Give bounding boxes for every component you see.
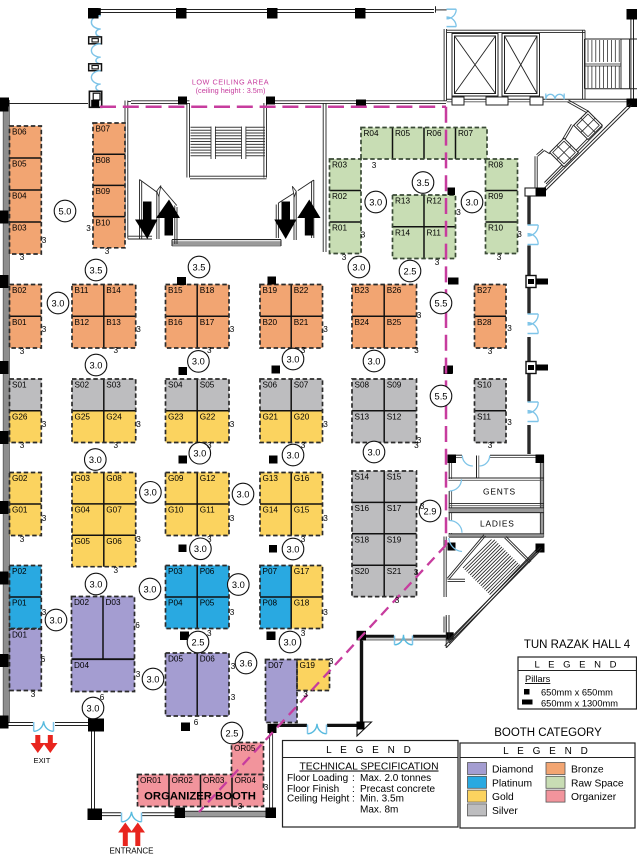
svg-text:D06: D06 — [200, 655, 215, 664]
svg-text:D05: D05 — [168, 655, 183, 664]
svg-text:3: 3 — [414, 346, 419, 355]
svg-text:3: 3 — [301, 441, 306, 450]
svg-text:R14: R14 — [395, 228, 410, 237]
svg-text:3: 3 — [207, 629, 212, 638]
svg-text:3: 3 — [414, 568, 419, 577]
svg-text:G10: G10 — [168, 506, 184, 515]
svg-text:B11: B11 — [75, 286, 89, 295]
svg-text:3: 3 — [507, 324, 512, 333]
svg-text:R04: R04 — [364, 129, 379, 138]
svg-text:2.5: 2.5 — [192, 637, 205, 647]
svg-text:S06: S06 — [263, 381, 278, 390]
svg-text:D07: D07 — [268, 661, 283, 670]
svg-text:P03: P03 — [168, 567, 183, 576]
svg-text:3.0: 3.0 — [194, 544, 207, 554]
svg-text:G08: G08 — [106, 474, 122, 483]
svg-text:3: 3 — [207, 535, 212, 544]
svg-text:3: 3 — [323, 608, 328, 617]
svg-text:6: 6 — [100, 693, 105, 702]
svg-text:D03: D03 — [106, 598, 121, 607]
svg-text:B15: B15 — [168, 286, 183, 295]
svg-text:TECHNICAL SPECIFICATION: TECHNICAL SPECIFICATION — [299, 762, 438, 773]
svg-text:B08: B08 — [96, 156, 111, 165]
svg-text:G20: G20 — [294, 412, 310, 421]
svg-text:3.0: 3.0 — [144, 584, 157, 594]
svg-text:L E G E N D: L E G E N D — [326, 745, 414, 756]
svg-text:3: 3 — [31, 690, 36, 699]
svg-text:3: 3 — [435, 258, 440, 267]
svg-text:P04: P04 — [168, 599, 183, 608]
svg-text:P01: P01 — [12, 599, 27, 608]
svg-text:B17: B17 — [200, 318, 215, 327]
svg-text:G21: G21 — [263, 412, 279, 421]
svg-text:G09: G09 — [168, 474, 184, 483]
svg-text:Floor Loading: Floor Loading — [287, 773, 348, 784]
svg-text:3: 3 — [303, 690, 308, 699]
svg-text:3: 3 — [20, 441, 25, 450]
svg-text:B26: B26 — [387, 286, 402, 295]
svg-text:3.0: 3.0 — [368, 356, 381, 366]
svg-text:G11: G11 — [200, 506, 215, 515]
svg-text:R09: R09 — [488, 192, 503, 201]
svg-text:R05: R05 — [395, 129, 410, 138]
svg-text:3: 3 — [42, 236, 47, 245]
svg-text:3: 3 — [395, 596, 400, 605]
svg-text:3: 3 — [507, 418, 512, 427]
svg-text:R06: R06 — [427, 129, 442, 138]
svg-text:L E G E N D: L E G E N D — [535, 660, 620, 671]
svg-text:B24: B24 — [355, 318, 370, 327]
svg-text:S10: S10 — [477, 381, 492, 390]
svg-text:B09: B09 — [96, 187, 111, 196]
svg-text:3: 3 — [114, 441, 119, 450]
svg-text:3: 3 — [86, 224, 91, 233]
svg-text:Max. 8m: Max. 8m — [360, 805, 398, 816]
svg-text:3.0: 3.0 — [52, 298, 65, 308]
svg-text:(ceiling height : 3.5m): (ceiling height : 3.5m) — [196, 86, 266, 95]
svg-text:S19: S19 — [387, 536, 402, 545]
svg-text:B01: B01 — [12, 318, 27, 327]
svg-text:G07: G07 — [106, 506, 122, 515]
svg-text:TUN RAZAK HALL 4: TUN RAZAK HALL 4 — [524, 639, 631, 651]
svg-text:3.0: 3.0 — [87, 703, 100, 713]
svg-text:B21: B21 — [294, 318, 309, 327]
svg-text:P05: P05 — [200, 599, 215, 608]
svg-text:3.0: 3.0 — [352, 262, 365, 272]
svg-text:G03: G03 — [75, 474, 91, 483]
svg-text:3: 3 — [329, 657, 334, 666]
svg-text:B20: B20 — [263, 318, 278, 327]
svg-text:3: 3 — [20, 535, 25, 544]
svg-text:3: 3 — [136, 670, 141, 679]
svg-text:B19: B19 — [263, 286, 278, 295]
svg-text:2.5: 2.5 — [226, 728, 239, 738]
svg-text:3: 3 — [323, 514, 328, 523]
svg-text:S15: S15 — [387, 473, 402, 482]
svg-text:OR01: OR01 — [140, 776, 162, 785]
svg-text:3: 3 — [231, 693, 236, 702]
svg-text:G14: G14 — [263, 506, 279, 515]
svg-text:EXIT: EXIT — [34, 756, 51, 765]
svg-text:3: 3 — [230, 608, 235, 617]
svg-text:G15: G15 — [294, 506, 310, 515]
svg-text:3.0: 3.0 — [193, 449, 206, 459]
svg-text:G06: G06 — [106, 537, 122, 546]
svg-text:R10: R10 — [488, 224, 503, 233]
svg-text:S08: S08 — [355, 381, 370, 390]
svg-text:3: 3 — [420, 502, 425, 511]
svg-text:3: 3 — [456, 208, 461, 217]
svg-text:S12: S12 — [387, 412, 402, 421]
svg-text:3.0: 3.0 — [50, 615, 63, 625]
svg-text::: : — [352, 794, 355, 805]
svg-text:3: 3 — [361, 231, 366, 240]
svg-text:G25: G25 — [75, 412, 91, 421]
svg-text:Platinum: Platinum — [492, 778, 532, 789]
svg-text:P06: P06 — [200, 567, 215, 576]
svg-text:3: 3 — [417, 436, 422, 445]
svg-text:3.0: 3.0 — [232, 580, 245, 590]
svg-text:S03: S03 — [106, 381, 121, 390]
svg-text:B16: B16 — [168, 318, 183, 327]
svg-text:6: 6 — [135, 621, 140, 630]
svg-text:3: 3 — [136, 535, 141, 544]
svg-text:3: 3 — [230, 325, 235, 334]
svg-text:D02: D02 — [74, 598, 89, 607]
svg-text:P07: P07 — [263, 567, 278, 576]
svg-text:3: 3 — [301, 535, 306, 544]
svg-text:S20: S20 — [355, 567, 370, 576]
svg-text:3: 3 — [42, 608, 47, 617]
svg-text:B28: B28 — [477, 318, 492, 327]
svg-text:3.0: 3.0 — [368, 447, 381, 457]
svg-text:G01: G01 — [12, 506, 28, 515]
svg-text:3: 3 — [342, 253, 347, 262]
svg-text:G16: G16 — [294, 474, 310, 483]
svg-text:OR05: OR05 — [234, 744, 256, 753]
svg-text:3: 3 — [114, 346, 119, 355]
svg-text:3: 3 — [207, 441, 212, 450]
svg-text:Diamond: Diamond — [492, 765, 533, 776]
svg-text:3.0: 3.0 — [89, 455, 102, 465]
svg-text:3: 3 — [114, 566, 119, 575]
svg-text:3: 3 — [136, 325, 141, 334]
svg-text:Silver: Silver — [492, 806, 518, 817]
svg-text:B06: B06 — [12, 128, 27, 137]
svg-text:Pillars: Pillars — [525, 674, 551, 684]
svg-text:L E G E N D: L E G E N D — [503, 746, 591, 757]
svg-text:D01: D01 — [12, 631, 27, 640]
svg-text:ENTRANCE: ENTRANCE — [109, 847, 153, 856]
svg-text:S16: S16 — [355, 504, 370, 513]
svg-text:Bronze: Bronze — [571, 765, 604, 776]
svg-text:S11: S11 — [477, 412, 491, 421]
svg-text:3.0: 3.0 — [144, 488, 157, 498]
svg-text:S13: S13 — [355, 412, 370, 421]
svg-text:3: 3 — [323, 420, 328, 429]
svg-text:R02: R02 — [332, 192, 347, 201]
svg-text:3.0: 3.0 — [466, 197, 479, 207]
svg-text:3: 3 — [42, 420, 47, 429]
svg-text:G19: G19 — [300, 661, 316, 670]
svg-text:B03: B03 — [12, 224, 27, 233]
svg-text:3: 3 — [20, 347, 25, 356]
svg-text:3: 3 — [497, 253, 502, 262]
svg-text:B07: B07 — [96, 125, 111, 134]
svg-text:3: 3 — [231, 662, 236, 671]
svg-text:BOOTH CATEGORY: BOOTH CATEGORY — [494, 727, 602, 739]
svg-text:3.6: 3.6 — [240, 658, 253, 668]
svg-text:2.9: 2.9 — [424, 506, 437, 516]
svg-text:S02: S02 — [75, 381, 90, 390]
svg-text:5.5: 5.5 — [435, 298, 448, 308]
svg-text:R07: R07 — [458, 129, 473, 138]
svg-text:B13: B13 — [106, 318, 121, 327]
svg-text:B22: B22 — [294, 286, 309, 295]
svg-text:3: 3 — [238, 802, 243, 811]
svg-text:LADIES: LADIES — [480, 519, 515, 529]
svg-text:3.0: 3.0 — [287, 354, 300, 364]
svg-text:G23: G23 — [168, 412, 184, 421]
svg-text::: : — [352, 773, 355, 784]
svg-text:Ceiling Height: Ceiling Height — [287, 794, 349, 805]
svg-text:3: 3 — [136, 420, 141, 429]
svg-text:3: 3 — [230, 420, 235, 429]
svg-text:3.0: 3.0 — [287, 544, 300, 554]
svg-text:B18: B18 — [200, 286, 215, 295]
svg-text:B04: B04 — [12, 192, 27, 201]
svg-text:R03: R03 — [332, 161, 347, 170]
svg-text:3.0: 3.0 — [287, 450, 300, 460]
svg-text:Max. 2.0 tonnes: Max. 2.0 tonnes — [360, 773, 431, 784]
svg-text:B02: B02 — [12, 286, 27, 295]
svg-text:G13: G13 — [263, 474, 279, 483]
svg-text:B12: B12 — [75, 318, 90, 327]
svg-text:650mm x 650mm: 650mm x 650mm — [541, 688, 613, 698]
svg-text:G12: G12 — [200, 474, 216, 483]
svg-text:6: 6 — [194, 718, 199, 727]
svg-text:3: 3 — [20, 253, 25, 262]
svg-text:3: 3 — [42, 325, 47, 334]
svg-text:R11: R11 — [427, 228, 442, 237]
svg-text:3: 3 — [42, 514, 47, 523]
svg-text:S09: S09 — [387, 381, 402, 390]
svg-text:3: 3 — [105, 247, 110, 256]
svg-text:Min. 3.5m: Min. 3.5m — [360, 794, 404, 805]
svg-text:S14: S14 — [355, 473, 370, 482]
svg-text:OR03: OR03 — [203, 776, 225, 785]
svg-text:B23: B23 — [355, 286, 370, 295]
svg-text:2.5: 2.5 — [404, 266, 417, 276]
svg-text:OR04: OR04 — [235, 776, 257, 785]
svg-text:3.0: 3.0 — [192, 357, 205, 367]
svg-text:3: 3 — [323, 325, 328, 334]
svg-text:S04: S04 — [168, 381, 183, 390]
svg-text:P08: P08 — [263, 599, 278, 608]
svg-text:3.0: 3.0 — [147, 674, 160, 684]
svg-text:5.5: 5.5 — [435, 391, 448, 401]
svg-text:3: 3 — [230, 514, 235, 523]
svg-text:OR02: OR02 — [172, 776, 194, 785]
svg-text:S21: S21 — [387, 567, 402, 576]
svg-text:G04: G04 — [75, 506, 91, 515]
svg-text:B27: B27 — [477, 286, 492, 295]
svg-text:3.5: 3.5 — [193, 262, 206, 272]
svg-text:3.0: 3.0 — [90, 579, 103, 589]
svg-text:G02: G02 — [12, 474, 28, 483]
svg-text:B05: B05 — [12, 160, 27, 169]
svg-text:3: 3 — [372, 161, 377, 170]
svg-text:B25: B25 — [387, 318, 402, 327]
svg-text:3: 3 — [301, 629, 306, 638]
svg-text:B14: B14 — [106, 286, 121, 295]
svg-text:B10: B10 — [96, 218, 111, 227]
svg-text:3: 3 — [417, 311, 422, 320]
svg-text:3: 3 — [488, 347, 493, 356]
svg-text:G18: G18 — [294, 599, 310, 608]
svg-text:ORGANIZER BOOTH: ORGANIZER BOOTH — [144, 791, 256, 803]
svg-text:G26: G26 — [12, 412, 28, 421]
svg-text:G22: G22 — [200, 412, 216, 421]
svg-text:3.5: 3.5 — [90, 265, 103, 275]
svg-text:6: 6 — [41, 655, 46, 664]
svg-text:3: 3 — [488, 441, 493, 450]
svg-text:G17: G17 — [294, 567, 310, 576]
svg-text:S18: S18 — [355, 536, 370, 545]
svg-text:650mm x 1300mm: 650mm x 1300mm — [541, 699, 618, 709]
svg-text:3.0: 3.0 — [237, 489, 250, 499]
svg-text:3: 3 — [517, 230, 522, 239]
svg-text:R12: R12 — [427, 197, 442, 206]
svg-text:P02: P02 — [12, 567, 27, 576]
svg-text:3: 3 — [301, 346, 306, 355]
svg-text:3.0: 3.0 — [90, 360, 103, 370]
svg-text:R13: R13 — [395, 197, 410, 206]
svg-text:G05: G05 — [75, 537, 91, 546]
svg-text:S01: S01 — [12, 381, 27, 390]
svg-text:GENTS: GENTS — [483, 487, 516, 497]
svg-text:Organizer: Organizer — [571, 792, 617, 803]
svg-text:D04: D04 — [74, 661, 89, 670]
svg-text:3.5: 3.5 — [417, 178, 430, 188]
svg-text:S07: S07 — [294, 381, 309, 390]
svg-text:Raw Space: Raw Space — [571, 778, 624, 789]
svg-text:Gold: Gold — [492, 792, 514, 803]
svg-text:R01: R01 — [332, 224, 347, 233]
svg-text:3: 3 — [264, 783, 269, 792]
svg-text:5.0: 5.0 — [59, 206, 72, 216]
svg-text:G24: G24 — [106, 412, 122, 421]
svg-text:S05: S05 — [200, 381, 215, 390]
svg-text:3.0: 3.0 — [369, 197, 382, 207]
svg-text:3: 3 — [207, 346, 212, 355]
svg-text:3.0: 3.0 — [284, 637, 297, 647]
svg-text:R08: R08 — [488, 161, 503, 170]
svg-text:S17: S17 — [387, 504, 402, 513]
